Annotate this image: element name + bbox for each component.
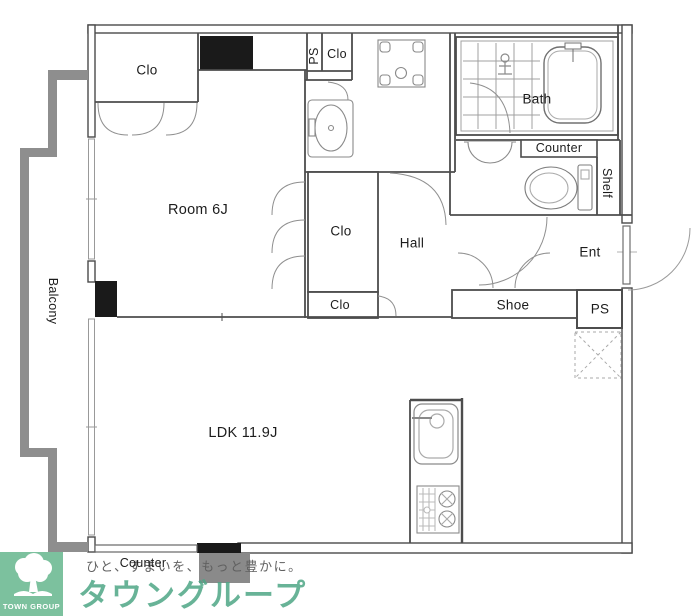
label-closet-mid: Clo	[330, 224, 351, 239]
wall-pillars	[95, 36, 253, 553]
label-bath: Bath	[523, 92, 552, 107]
label-balcony: Balcony	[46, 278, 60, 325]
toilet	[525, 165, 592, 210]
washing-machine	[378, 40, 425, 87]
label-closet-top: Clo	[327, 47, 347, 61]
logo-text: TOWN GROUP	[0, 602, 63, 611]
label-entrance: Ent	[579, 245, 600, 260]
floorplan-page: { "plan": { "labels": { "clo_top_left": …	[0, 0, 700, 616]
label-counter-wc: Counter	[536, 141, 583, 155]
kitchen-sink	[412, 404, 458, 464]
refrigerator-space	[575, 332, 621, 378]
window-sashes	[86, 139, 97, 535]
label-room-6j: Room 6J	[168, 202, 228, 218]
label-closet-small: Clo	[330, 298, 350, 312]
tree-icon	[0, 552, 63, 598]
label-pipe-space-top: PS	[307, 47, 321, 64]
label-pipe-space-entrance: PS	[591, 302, 610, 317]
label-shelf: Shelf	[600, 168, 614, 198]
town-group-logo: TOWN GROUP	[0, 552, 63, 616]
wc-basin	[464, 142, 516, 163]
label-ldk: LDK 11.9J	[208, 425, 277, 441]
bathtub	[544, 43, 601, 123]
label-counter-kitchen: Counter	[120, 556, 167, 570]
vanity-basin	[308, 100, 353, 157]
gas-stove	[417, 486, 459, 533]
label-shoe: Shoe	[497, 298, 530, 313]
label-hall: Hall	[400, 236, 424, 251]
entrance-door	[623, 226, 690, 290]
label-closet-top-left: Clo	[136, 63, 157, 78]
brand-name-watermark: タウングループ	[78, 570, 307, 615]
